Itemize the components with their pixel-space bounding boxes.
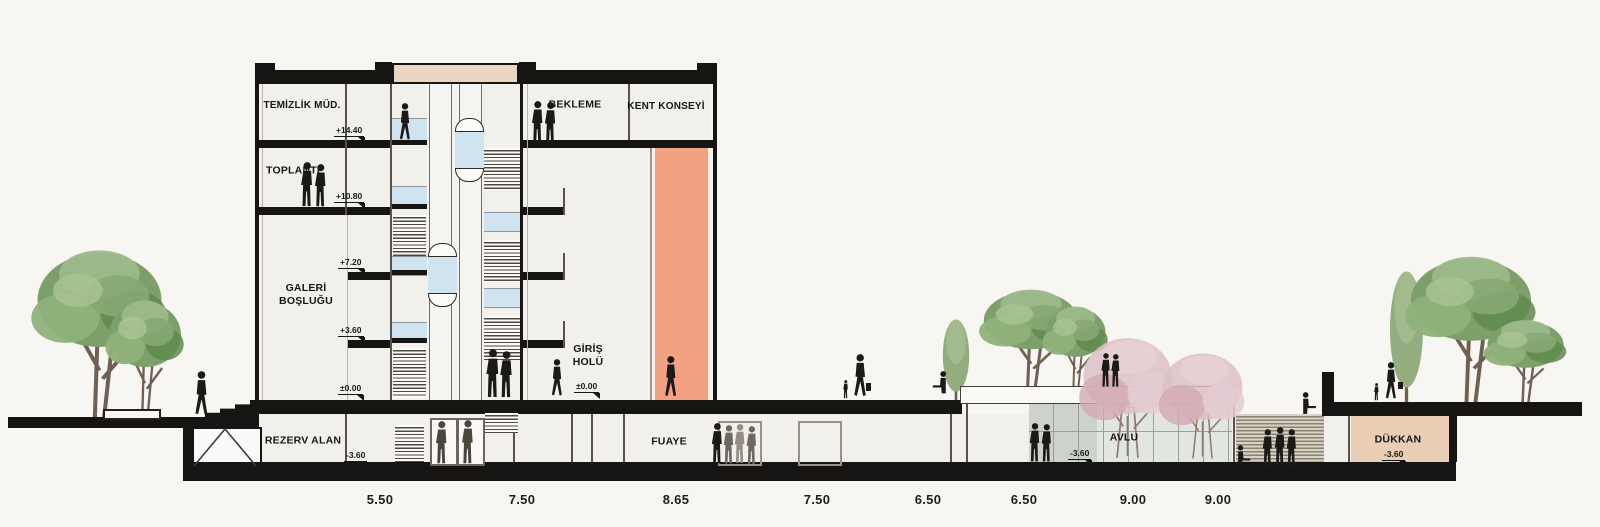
dimension-6.50-b: 6.50 [1011,492,1038,507]
stair-window-2 [392,186,427,206]
stair-flight-4 [484,240,520,282]
stair-flight-3 [484,148,520,190]
fuaye-door-frame-1 [718,421,762,466]
slab-left-+10.80 [255,207,392,215]
elevation-marker-0.00-core: ±0.00 [338,384,363,395]
stair-window-1 [392,118,427,142]
stair-window-6 [484,288,520,308]
dimension-7.50-a: 7.50 [509,492,536,507]
room-label-galeri-boslugu: GALERİ BOŞLUĞU [270,282,342,308]
salmon-door-frame [650,148,652,400]
stair-flight-5 [484,316,520,360]
room-label-temizlik-mud: TEMİZLİK MÜD. [263,100,340,113]
elevation-marker-0.00-giris: ±0.00 [574,382,599,393]
landing-stub-+3.60 [347,340,392,348]
slab-left-+14.40 [255,140,392,148]
elevation-marker--3.60-avlu: -3.60 [1068,449,1091,460]
slat-wall [1236,414,1324,462]
landing-stub-+7.20 [347,272,392,280]
roof-upstand-left [375,62,392,84]
tree-behind-pavilion-2 [1043,306,1108,393]
room-label-giris-holu: GİRİŞ HOLÜ [564,343,612,369]
bench [103,409,161,420]
wall-dukkan-right [1449,416,1457,462]
slab-right-+14.40 [523,140,717,148]
elevator-door-basement-1 [430,418,458,466]
ground-slab-main [250,400,962,414]
room-label-bekleme: BEKLEME [549,98,602,111]
dimension-9.00-a: 9.00 [1120,492,1147,507]
elevation-marker--3.60-rezerv: -3.60 [344,451,367,462]
core-wall-right [520,84,523,400]
pavilion-post-left [966,404,968,462]
basement-stair-flight [395,425,424,462]
stair-flight-1 [393,215,426,256]
elevation-marker-+7.20: +7.20 [338,258,364,269]
core-landing-1 [392,140,427,145]
building-wall-right [713,70,717,414]
elevation-marker--3.60-dukkan: -3.60 [1382,450,1405,461]
wall-under-pavilion [950,414,952,462]
wall-fuaye-left [623,414,625,462]
core-landing-3 [392,270,427,275]
tree-right-small [1484,320,1567,402]
dimension-8.65: 8.65 [663,492,690,507]
giris-mullion-1 [527,84,528,400]
room-label-fuaye: FUAYE [651,435,687,448]
room-label-kent-konseyi: KENT KONSEYİ [627,101,704,114]
room-label-avlu: AVLU [1110,431,1139,444]
basement-half-flight [485,413,518,433]
wall-dukkan-left [1348,416,1350,462]
section-drawing: TEMİZLİK MÜD. TOPLANTI GALERİ BOŞLUĞU BE… [0,0,1600,527]
ground-slab-right [1330,402,1582,416]
core-landing-4 [392,338,427,343]
pavilion-roof-slab [960,386,1236,404]
dimension-9.00-b: 9.00 [1205,492,1232,507]
elevator-door-basement-2 [457,418,485,466]
elevator-rail-2 [451,84,452,400]
room-label-toplanti: TOPLANTI [266,164,320,177]
ground-left-plaza [8,417,190,428]
elevation-marker-+14.40: +14.40 [334,126,364,137]
wall-basement-3 [591,414,593,462]
tree-left-small [105,301,183,416]
elevator-cabin-upper [455,118,484,182]
dimension-7.50-b: 7.50 [804,492,831,507]
elevator-rail-1 [429,84,430,400]
dimension-6.50-a: 6.50 [915,492,942,507]
elevator-cabin-lower [428,243,457,307]
facade-inner-line-left [262,84,263,400]
pavilion-post-right [1233,404,1235,462]
core-landing-2 [392,204,427,209]
stair-window-5 [484,212,520,232]
dimension-5.50: 5.50 [367,492,394,507]
roof-upstand-right [519,62,536,84]
salmon-shaft [655,148,708,400]
elevation-marker-+3.60: +3.60 [338,326,364,337]
wall-basement-2 [571,414,573,462]
roof-penthouse-block [392,63,519,84]
gallery-edge-line [347,215,348,400]
elevation-marker-+10.80: +10.80 [334,192,364,203]
wall-nib-2 [563,253,565,280]
stair-flight-2 [393,348,426,398]
room-label-dukkan: DÜKKAN [1375,433,1422,446]
room-label-rezerv-alan: REZERV ALAN [265,434,341,447]
wall-nib-1 [563,188,565,215]
fuaye-door-frame-2 [798,421,842,466]
